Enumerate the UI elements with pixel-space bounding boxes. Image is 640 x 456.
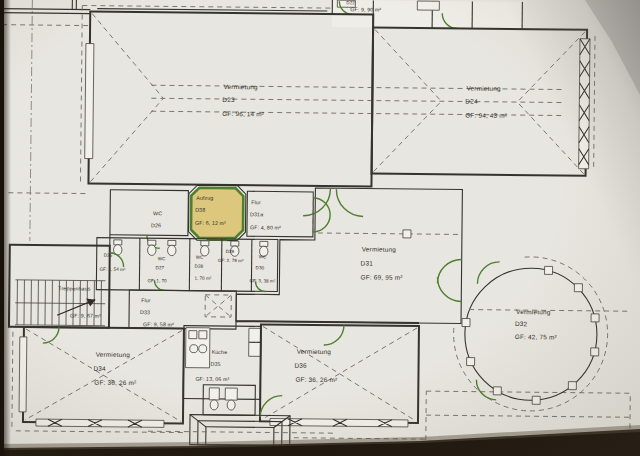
- room-area: GF: 2, 79 m²: [218, 258, 244, 263]
- room-id: D24: [465, 98, 478, 105]
- room-id: D34: [93, 365, 106, 372]
- room-name: Flur: [251, 199, 261, 205]
- room-d34: Vermietung D34 GF: 36, 26 m²: [19, 327, 184, 428]
- room-area: GF: 6, 12 m²: [195, 220, 226, 226]
- room-id: D31a: [250, 211, 263, 217]
- room-name: Vermietung: [362, 245, 397, 253]
- toilet-fixtures: [114, 240, 269, 257]
- room-area: GF: 3, 38 m²: [249, 278, 275, 283]
- window-hatch: [270, 418, 408, 426]
- room-area: GF: 36, 26 m²: [94, 379, 136, 386]
- room-d30: WC D30 GF: 3, 38 m²: [249, 254, 276, 283]
- room-id: D32: [515, 320, 528, 327]
- room-d28: WC D28 1, 70 m²: [194, 255, 212, 281]
- room-d24: Vermietung D24 GF: 94, 43 m²: [372, 28, 591, 176]
- room-d36: Vermietung D36 GF: 36, 26 m²: [260, 324, 419, 427]
- room-area: GF: 9, 58 m²: [143, 321, 174, 327]
- room-id: D23: [222, 96, 235, 103]
- room-id: D27: [156, 265, 165, 270]
- room-name: Vermietung: [223, 83, 258, 91]
- room-id: D26: [151, 222, 161, 228]
- entrance-wc: [203, 385, 282, 418]
- room-area: GF: 94, 43 m²: [465, 112, 507, 119]
- room-d33: Flur D33 GF: 9, 58 m²: [129, 290, 236, 329]
- roof-hip-lines: [90, 14, 562, 187]
- room-name: WC: [158, 256, 166, 261]
- room-area: GF: 9, 67 m²: [70, 312, 101, 318]
- room-id: D31: [361, 259, 374, 266]
- room-id: D30: [256, 265, 265, 270]
- room-d27: WC D27 GF: 1, 70: [147, 256, 167, 283]
- room-id: D29: [226, 249, 235, 254]
- room-area: GF: 4, 80 m²: [250, 224, 281, 230]
- room-d25: D25 GF: 1, 54 m²: [100, 253, 126, 272]
- room-name: Vermietung: [516, 308, 551, 316]
- room-area: GF: 96, 14 m²: [222, 110, 264, 117]
- room-area: GF: 69, 95 m²: [360, 273, 402, 280]
- terrace-lines: [426, 256, 632, 443]
- room-area: GF: 13, 06 m²: [195, 376, 229, 382]
- kitchen-counter: [186, 328, 261, 369]
- room-name: Aufzug: [196, 195, 213, 201]
- room-name: Vermietung: [96, 351, 131, 359]
- room-name: Vermietung: [466, 85, 501, 93]
- room-id: D22: [346, 0, 355, 5]
- room-d31: Vermietung D31 GF: 69, 95 m²: [236, 187, 462, 323]
- window-hatch: [579, 39, 590, 169]
- room-id: D35: [211, 361, 221, 367]
- room-id: D38: [195, 207, 205, 213]
- room-d32: Vermietung D32 GF: 42, 75 m²: [461, 261, 627, 405]
- room-name: Flur: [141, 297, 151, 303]
- room-id: D36: [295, 362, 308, 369]
- room-name: WC: [259, 254, 267, 259]
- room-name: Küche: [212, 349, 228, 355]
- room-area: GF: 36, 26 m²: [295, 376, 337, 383]
- floorplan-drawing: D22 GF: 9, 90 m² Vermietung D23 GF: 96, …: [0, 0, 640, 456]
- reference-lines: [0, 0, 90, 428]
- floorplan-photo: D22 GF: 9, 90 m² Vermietung D23 GF: 96, …: [0, 0, 640, 456]
- elevator-d38: Aufzug D38 GF: 6, 12 m²: [188, 185, 246, 241]
- room-area: GF: 42, 75 m²: [515, 333, 557, 340]
- room-id: D33: [140, 309, 150, 315]
- room-d23: Vermietung D23 GF: 96, 14 m²: [84, 9, 562, 189]
- room-name: WC: [196, 255, 204, 260]
- room-name: Treppenhaus: [58, 285, 90, 291]
- room-area: GF: 9, 90 m²: [350, 6, 381, 12]
- room-area: GF: 1, 54 m²: [100, 267, 126, 272]
- room-area: 1, 70 m²: [194, 276, 211, 281]
- room-area: GF: 1, 70: [147, 278, 167, 283]
- room-name: WC: [153, 210, 162, 216]
- room-id: D28: [195, 264, 204, 269]
- room-name: Vermietung: [297, 348, 332, 356]
- plan: D22 GF: 9, 90 m² Vermietung D23 GF: 96, …: [0, 0, 634, 449]
- room-d31a: Flur D31a GF: 4, 80 m²: [247, 191, 330, 237]
- room-d35: Küche D35 GF: 13, 06 m²: [183, 326, 261, 400]
- photo-edges: [0, 0, 640, 456]
